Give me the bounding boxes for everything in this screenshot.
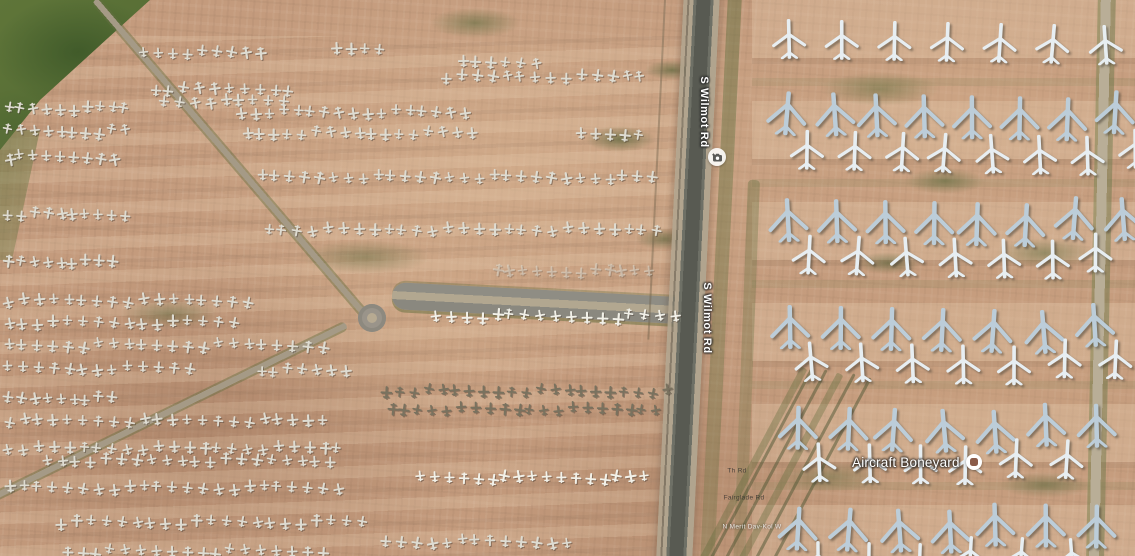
minor-road-label-3: N Merit Dav-Kol W bbox=[723, 524, 782, 531]
poi-aircraft-boneyard[interactable]: Aircraft Boneyard bbox=[852, 454, 982, 470]
poi-marker-icon[interactable] bbox=[966, 454, 982, 470]
road-label-s-wilmot-south: S Wilmot Rd bbox=[701, 282, 713, 353]
road-roundabout bbox=[358, 304, 386, 332]
minor-road-label-1: Th Rd bbox=[727, 468, 746, 475]
add-photo-icon[interactable] bbox=[708, 148, 726, 166]
poi-label: Aircraft Boneyard bbox=[852, 455, 960, 470]
minor-road-label-2: Fairglade Rd bbox=[724, 495, 765, 502]
camera-glyph bbox=[712, 153, 723, 162]
satellite-map[interactable]: S Wilmot Rd S Wilmot Rd Aircraft Boneyar… bbox=[0, 0, 1135, 556]
road-label-s-wilmot-north: S Wilmot Rd bbox=[698, 76, 710, 147]
